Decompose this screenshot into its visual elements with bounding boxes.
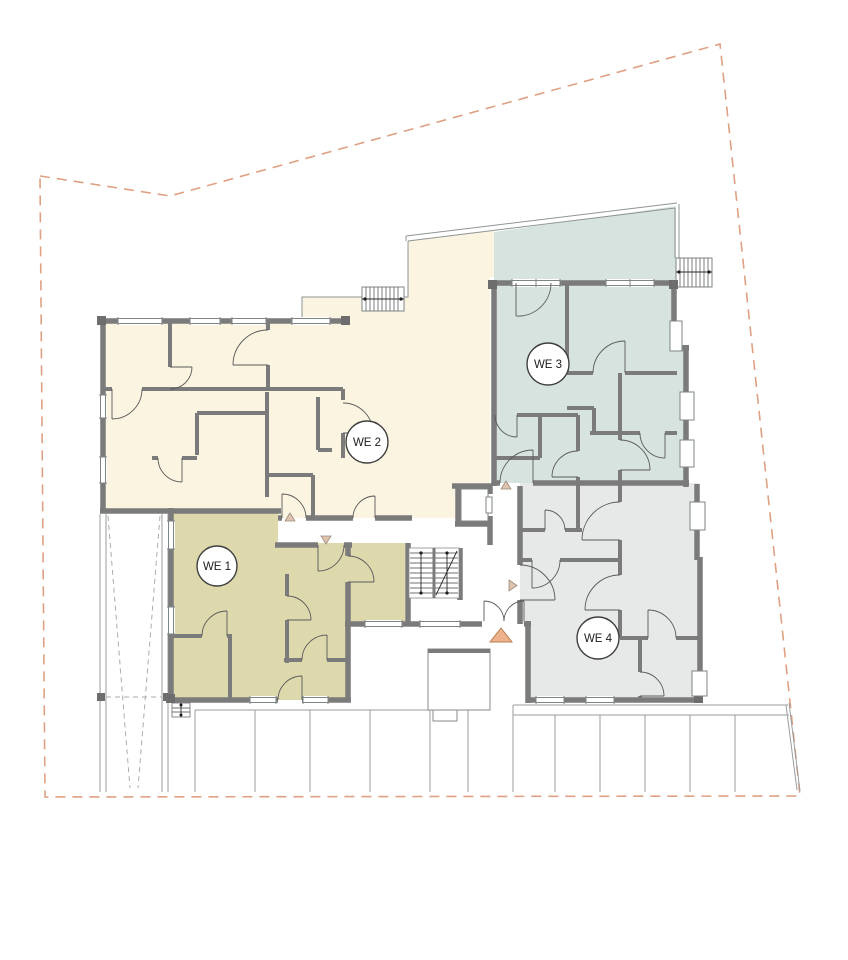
balcony-stair-left [362, 287, 404, 311]
shed [428, 649, 490, 721]
floor-plan-page: WE 1 WE 2 WE 3 WE 4 [0, 0, 848, 960]
unit-label-we3-text: WE 3 [534, 359, 562, 371]
unit-label-we1-text: WE 1 [203, 561, 231, 573]
elevator-shaft [461, 489, 492, 521]
we4-entrance-marker [509, 580, 517, 591]
exterior-stair [172, 703, 190, 717]
unit-label-we4: WE 4 [577, 617, 619, 659]
parking-spaces-right [513, 703, 800, 792]
unit-label-we2-text: WE 2 [353, 437, 381, 449]
unit-label-we3: WE 3 [527, 343, 569, 385]
unit-label-we4-text: WE 4 [584, 633, 613, 645]
unit-label-we2: WE 2 [346, 421, 388, 463]
balcony-stair-right [676, 258, 712, 287]
we1-entrance-marker [321, 536, 331, 544]
main-entrance-marker [490, 628, 512, 642]
floor-plan: WE 1 WE 2 WE 3 WE 4 [0, 0, 848, 960]
unit-we3-area [494, 206, 688, 483]
driveway-ramp [97, 514, 171, 792]
unit-we4-area [520, 483, 699, 700]
unit-we1-area [168, 511, 405, 700]
staircase [409, 548, 459, 598]
parking-spaces-left [195, 710, 468, 792]
unit-label-we1: WE 1 [197, 546, 237, 586]
